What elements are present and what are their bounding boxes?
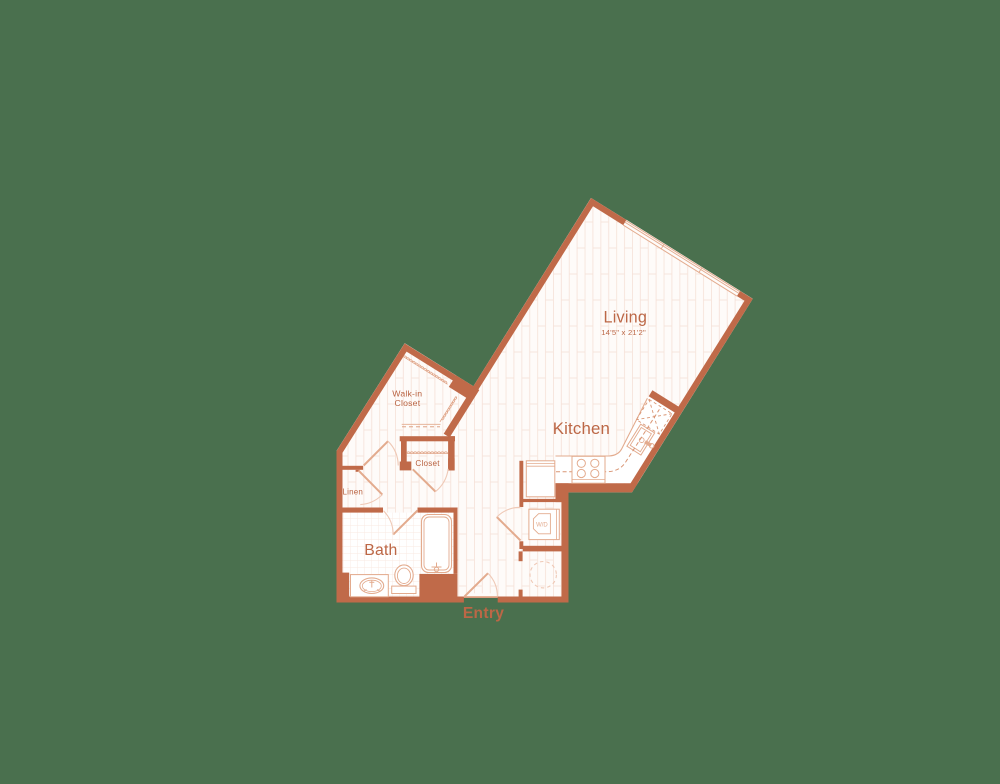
svg-text:Linen: Linen [343, 487, 364, 496]
svg-text:Closet: Closet [415, 459, 440, 468]
svg-text:Bath: Bath [364, 542, 397, 559]
svg-text:Closet: Closet [394, 398, 420, 408]
svg-text:Living: Living [604, 308, 648, 326]
svg-text:14'5" x 21'2": 14'5" x 21'2" [601, 328, 646, 337]
svg-text:Walk-in: Walk-in [392, 388, 422, 398]
svg-text:W/D: W/D [536, 522, 548, 528]
svg-text:Kitchen: Kitchen [553, 419, 610, 438]
svg-text:Entry: Entry [463, 605, 504, 622]
